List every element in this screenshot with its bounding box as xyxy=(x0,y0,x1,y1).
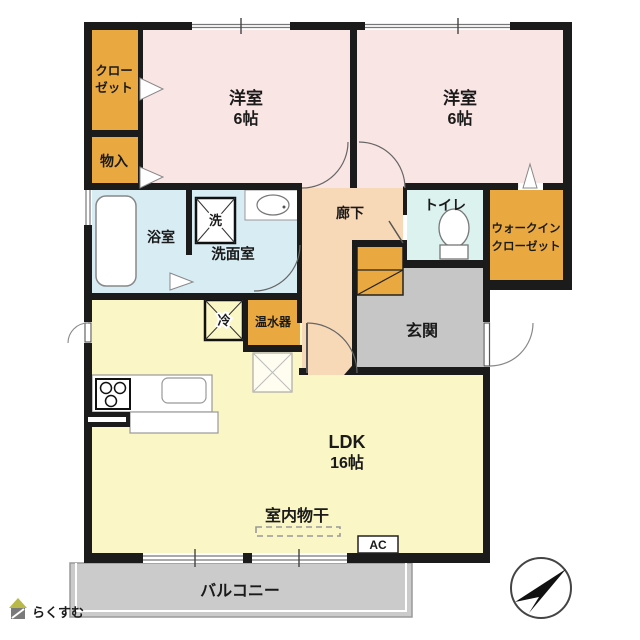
closet-label-1: クロー xyxy=(95,64,133,78)
compass xyxy=(511,558,571,618)
bath-label: 浴室 xyxy=(147,229,175,245)
logo-text: らくすむ xyxy=(32,605,84,620)
floor-plan-page: 洗 冷 xyxy=(0,0,640,640)
fridge-label: 冷 xyxy=(217,313,230,328)
stove xyxy=(96,379,130,409)
ac-label: AC xyxy=(369,538,387,552)
front-door xyxy=(483,322,533,367)
room-wic xyxy=(490,190,563,280)
washer-label: 洗 xyxy=(209,213,222,228)
closet-label-2: ゼット xyxy=(95,80,133,95)
floor-plan-drawing: 洗 冷 xyxy=(0,0,640,640)
room-closet xyxy=(92,30,138,130)
toilet-label: トイレ xyxy=(424,197,466,213)
logo-house-roof-icon xyxy=(9,598,27,608)
room-fills xyxy=(92,30,566,553)
ac-unit: AC xyxy=(358,536,398,553)
kitchen-panel-slit xyxy=(88,417,126,422)
bedroom1-label: 洋室 xyxy=(229,88,263,108)
entrance-label: 玄関 xyxy=(406,321,438,340)
water-heater-label: 温水器 xyxy=(255,314,292,329)
balcony-label: バルコニー xyxy=(200,582,280,600)
ldk-size: 16帖 xyxy=(330,453,364,472)
hallway-label: 廊下 xyxy=(336,205,364,221)
bedroom2-size: 6帖 xyxy=(448,109,473,128)
bathtub xyxy=(96,196,136,286)
bedroom1-size: 6帖 xyxy=(234,109,259,128)
indoor-drying-label: 室内物干 xyxy=(265,506,329,525)
shoe-cabinet xyxy=(357,245,403,295)
room-hallway-lower xyxy=(302,300,357,375)
counter-return xyxy=(130,412,218,433)
kitchen-sink xyxy=(162,378,206,403)
washroom-label: 洗面室 xyxy=(211,245,255,263)
toilet-fixture xyxy=(439,209,469,259)
washing-machine-symbol: 洗 xyxy=(196,198,235,243)
hatch-symbol xyxy=(253,353,292,392)
wic-label-2: クローゼット xyxy=(492,239,561,253)
vanity-sink xyxy=(257,195,289,215)
window-bath xyxy=(84,190,92,225)
bedroom2-label: 洋室 xyxy=(443,88,477,108)
wic-label-1: ウォークイン xyxy=(492,222,561,235)
refrigerator-symbol: 冷 xyxy=(205,300,243,340)
storage-label: 物入 xyxy=(100,153,128,169)
side-door xyxy=(68,322,92,343)
ldk-label: LDK xyxy=(329,432,366,452)
